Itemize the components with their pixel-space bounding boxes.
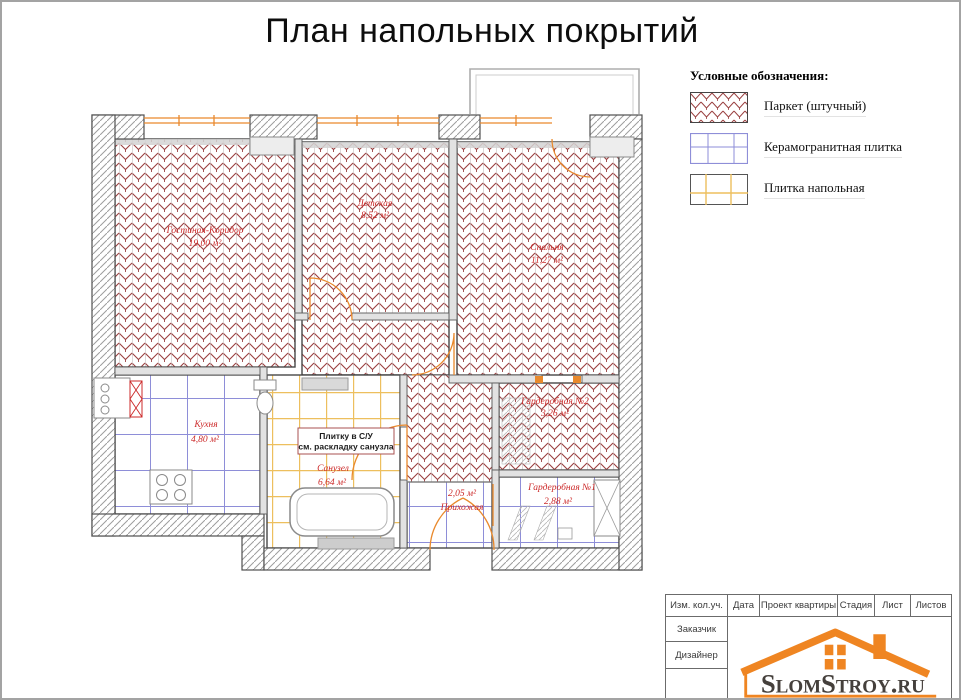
legend-label-floor-tile: Плитка напольная [764, 180, 865, 199]
room-label-living-corridor: Гостиная-Коридор [165, 225, 243, 236]
room-label-wardrobe-1: Гардеробная №1 [527, 482, 596, 493]
note-line-1: Плитку в С/У [319, 431, 373, 441]
room-area-living-corridor: 19,00 м² [189, 239, 222, 249]
balcony-outline [470, 69, 639, 114]
kitchen-sink-unit [94, 378, 130, 418]
logo-slomstroy: SlomStroy.ru [728, 617, 951, 699]
room-label-bedroom: Спальня [530, 243, 563, 253]
floor-tile-swatch [690, 174, 748, 205]
note-line-2: см. раскладку санузла [298, 442, 393, 452]
legend: Условные обозначения: Паркет (штучный) [690, 68, 954, 215]
titleblock-row-empty [666, 669, 728, 699]
titleblock-col-data: Дата [728, 595, 760, 617]
room-area-children: 8,52 м² [361, 211, 389, 221]
legend-item-parquet: Паркет (штучный) [690, 92, 954, 123]
ceramic-tile-swatch [690, 133, 748, 164]
toilet-tank [254, 380, 276, 390]
legend-title: Условные обозначения: [690, 68, 954, 84]
toilet-bowl [257, 392, 273, 414]
room-area-wardrobe-2: 3,26 м² [540, 409, 569, 419]
legend-item-floor-tile: Плитка напольная [690, 174, 954, 205]
logo-text: SlomStroy.ru [760, 668, 924, 698]
titleblock-row-designer: Дизайнер [666, 642, 728, 669]
room-area-bathroom: 6,64 м² [318, 478, 346, 488]
bathroom-note: Плитку в С/У см. раскладку санузла [298, 428, 394, 454]
room-label-kitchen: Кухня [193, 420, 217, 430]
bath-step [318, 538, 394, 549]
room-label-hallway: Прихожая [440, 503, 484, 513]
room-area-bedroom: 11,27 м² [531, 256, 563, 266]
titleblock-col-stage: Стадия [838, 595, 875, 617]
legend-item-ceramic: Керамогранитная плитка [690, 133, 954, 164]
titleblock-col-sheet: Лист [875, 595, 911, 617]
room-area-kitchen: 4,80 м² [191, 435, 219, 445]
room-area-hallway: 2,05 м² [448, 489, 476, 499]
radiator-symbol [130, 381, 142, 417]
floor-children-room [302, 142, 449, 375]
titleblock-col-izm: Изм. кол.уч. [666, 595, 728, 617]
floor-living-corridor [115, 139, 295, 367]
room-area-wardrobe-1: 2,88 м² [544, 497, 572, 507]
room-label-children: Детская [357, 199, 393, 209]
stove [150, 470, 192, 504]
title-block: Изм. кол.уч. Дата Проект квартиры Стадия… [665, 594, 952, 700]
slomstroy-house-logo: SlomStroy.ru [730, 619, 950, 699]
titleblock-row-customer: Заказчик [666, 617, 728, 642]
floor-corridor-strip [407, 375, 492, 482]
parquet-swatch [690, 92, 748, 123]
room-label-bathroom: Санузел [317, 464, 349, 474]
bathroom-shelf [302, 378, 348, 390]
floor-plan-sheet: План напольных покрытий [0, 0, 961, 700]
titleblock-col-project: Проект квартиры [760, 595, 838, 617]
legend-label-ceramic: Керамогранитная плитка [764, 139, 902, 158]
legend-label-parquet: Паркет (штучный) [764, 98, 866, 117]
titleblock-col-sheets: Листов [911, 595, 951, 617]
room-label-wardrobe-2: Гардеробная №2 [520, 396, 589, 407]
bathtub [290, 488, 394, 536]
